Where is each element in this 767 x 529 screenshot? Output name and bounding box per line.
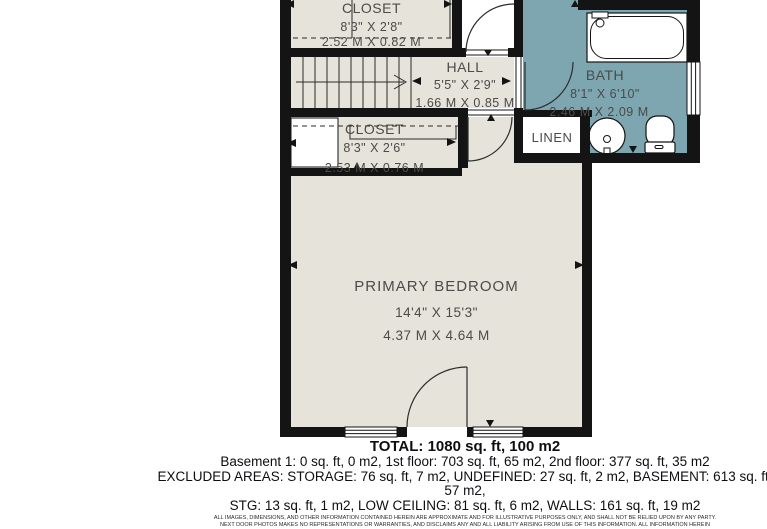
room-dim-hall-imperial: 5'5" X 2'9" bbox=[413, 79, 517, 93]
excluded-areas-line1: EXCLUDED AREAS: STORAGE: 76 sq. ft, 7 m2… bbox=[150, 470, 767, 499]
room-label-bath: BATH bbox=[523, 68, 687, 83]
room-dim-closet-lower-metric: 2.53 M X 0.76 M bbox=[291, 162, 458, 176]
room-label-linen: LINEN bbox=[519, 131, 585, 145]
room-dim-closet-top-metric: 2.52 M X 0.82 M bbox=[291, 36, 452, 50]
sink bbox=[589, 118, 625, 154]
total-area-line: TOTAL: 1080 sq. ft, 100 m2 bbox=[150, 438, 767, 455]
disclaimer-line1: ALL IMAGES, DIMENSIONS, AND OTHER INFORM… bbox=[150, 515, 767, 522]
disclaimer-line2: NEXT DOOR PHOTOS MAKES NO REPRESENTATION… bbox=[150, 522, 767, 529]
room-dim-bath-imperial: 8'1" X 6'10" bbox=[523, 88, 687, 102]
room-dim-hall-metric: 1.66 M X 0.85 M bbox=[410, 97, 520, 111]
tub-faucet bbox=[592, 12, 608, 18]
room-label-hall: HALL bbox=[413, 60, 517, 75]
area-summary: TOTAL: 1080 sq. ft, 100 m2 Basement 1: 0… bbox=[150, 438, 767, 529]
bath-window bbox=[687, 62, 700, 115]
floor-areas-line: Basement 1: 0 sq. ft, 0 m2, 1st floor: 7… bbox=[150, 455, 767, 470]
bathtub bbox=[587, 12, 687, 62]
room-label-primary-bedroom: PRIMARY BEDROOM bbox=[291, 279, 582, 296]
room-label-closet-top: CLOSET bbox=[291, 1, 452, 16]
room-dim-closet-top-imperial: 8'3" X 2'8" bbox=[291, 21, 452, 35]
floor-plan: CLOSET 8'3" X 2'8" 2.52 M X 0.82 M HALL … bbox=[0, 0, 767, 511]
window bbox=[473, 427, 523, 437]
room-dim-bath-metric: 2.46 M X 2.09 M bbox=[517, 106, 681, 120]
toilet bbox=[645, 116, 675, 153]
room-dim-closet-lower-imperial: 8'3" X 2'6" bbox=[291, 142, 458, 156]
room-dim-primary-bedroom-metric: 4.37 M X 4.64 M bbox=[291, 329, 582, 344]
room-dim-primary-bedroom-imperial: 14'4" X 15'3" bbox=[291, 306, 582, 321]
room-label-closet-lower: CLOSET bbox=[291, 122, 458, 137]
window bbox=[345, 427, 397, 437]
door-arc-upper-hall bbox=[466, 4, 514, 52]
